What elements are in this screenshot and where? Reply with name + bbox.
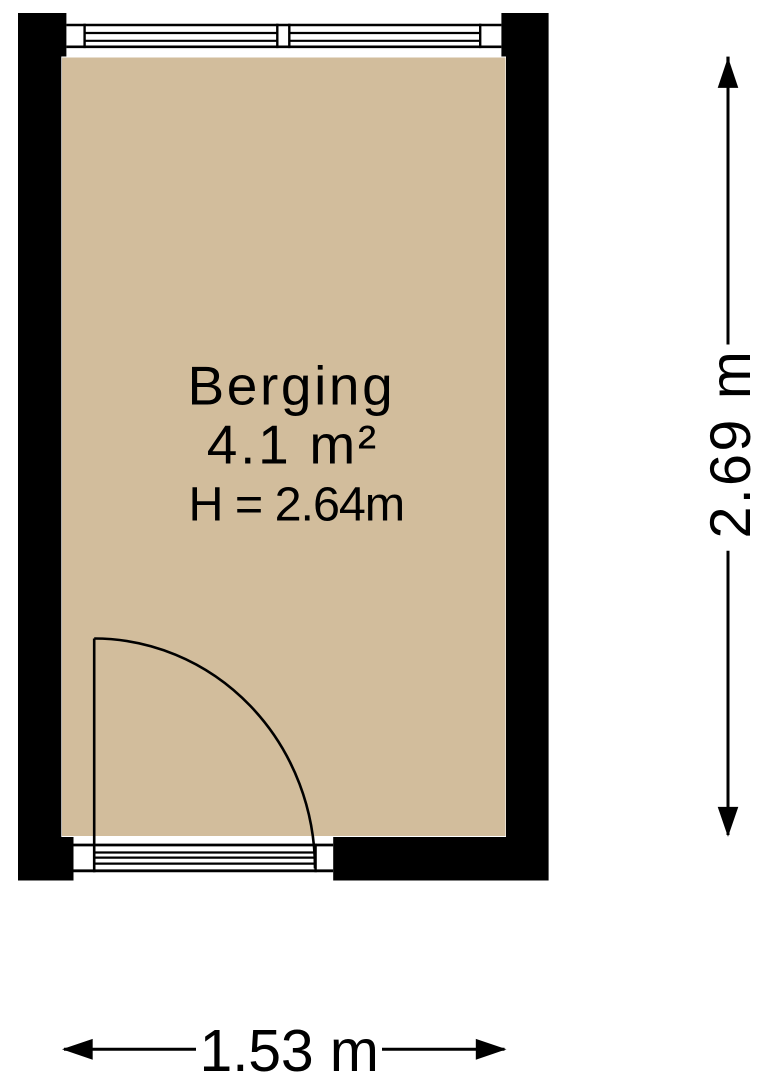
- svg-text:2.69 m: 2.69 m: [699, 349, 763, 539]
- svg-text:Berging: Berging: [188, 355, 396, 417]
- svg-text:H = 2.64m: H = 2.64m: [189, 477, 405, 531]
- svg-text:4.1 m²: 4.1 m²: [207, 413, 379, 475]
- svg-text:1.53 m: 1.53 m: [200, 1018, 379, 1084]
